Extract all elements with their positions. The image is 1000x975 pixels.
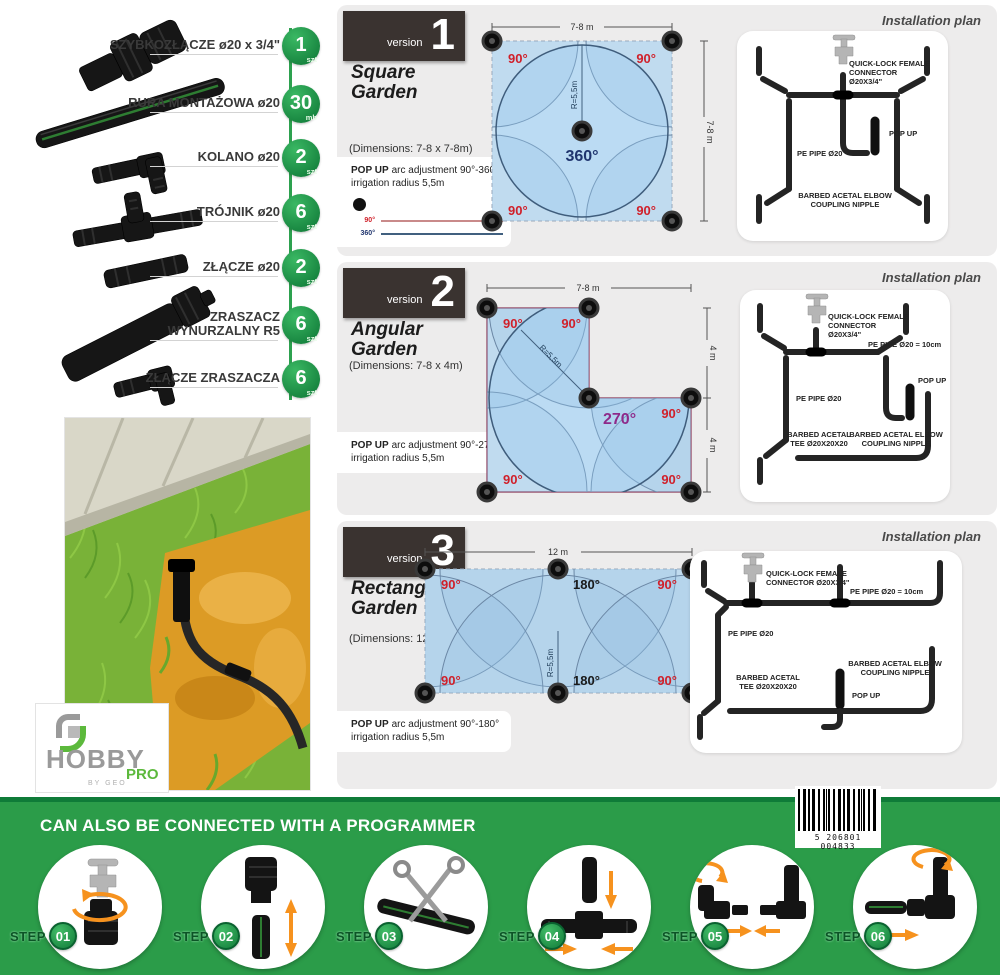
part-label: TRÓJNIK ø20	[197, 205, 280, 219]
svg-text:90°: 90°	[636, 203, 656, 218]
leader-line	[150, 221, 278, 222]
plan-label-elbow: BARBED ACETAL ELBOW COUPLING NIPPLE	[785, 191, 905, 209]
tap-icon	[806, 294, 828, 323]
leader-line	[150, 276, 278, 277]
logo-byline: BY GEO	[88, 780, 127, 787]
step-1-photo	[38, 845, 162, 969]
part-label: ZRASZACZ WYNURZALNY R5	[150, 310, 280, 337]
leader-line	[150, 340, 278, 341]
step-4-photo	[527, 845, 651, 969]
svg-text:90°: 90°	[441, 577, 461, 592]
svg-text:4 m: 4 m	[708, 345, 717, 360]
step-1-tap-coupling-icon	[38, 845, 162, 969]
svg-text:12 m: 12 m	[548, 547, 568, 557]
version-1-badge: version 1	[343, 11, 465, 61]
step-2-badge: STEP 02	[173, 922, 240, 950]
part-label: ZŁĄCZE ø20	[203, 260, 280, 274]
plan-label-pe-pipe: PE PIPE Ø20	[796, 394, 841, 403]
version-2-badge: version 2	[343, 268, 465, 318]
step-4-badge: STEP 04	[499, 922, 566, 950]
installation-plan-title: Installation plan	[882, 270, 981, 285]
quantity-badge: 2szt	[282, 139, 320, 177]
svg-text:180°: 180°	[573, 577, 600, 592]
svg-text:R=5,5m: R=5,5m	[546, 649, 555, 678]
installation-plan-title: Installation plan	[882, 529, 981, 544]
step-5-photo	[690, 845, 814, 969]
part-label: ZŁĄCZE ZRASZACZA	[146, 371, 280, 385]
step-2-photo	[201, 845, 325, 969]
part-label: KOLANO ø20	[198, 150, 280, 164]
svg-text:360°: 360°	[565, 148, 598, 165]
installation-plan-box: QUICK-LOCK FEMALE CONNECTOR Ø20X3/4" PE …	[690, 551, 962, 753]
step-1-badge: STEP 01	[10, 922, 77, 950]
rectangular-garden-diagram: 12 m 6 m R=5,5m 90° 180° 90° 90°	[407, 543, 713, 723]
leaflet-page: SZYBKOZŁĄCZE ø20 x 3/4" 1szt RURA MONTAŻ…	[0, 0, 1000, 975]
banner-title: CAN ALSO BE CONNECTED WITH A PROGRAMMER	[40, 816, 476, 836]
plan-label-pop-up: POP UP	[852, 691, 880, 700]
step-3-scissors-icon	[364, 845, 488, 969]
step-6-photo	[853, 845, 977, 969]
plan-label-elbow: BARBED ACETAL ELBOW COUPLING NIPPLE	[840, 659, 950, 677]
step-3-badge: STEP 03	[336, 922, 403, 950]
barcode-bars	[798, 789, 878, 831]
svg-text:4 m: 4 m	[708, 437, 717, 452]
square-garden-diagram: 7-8 m 7-8 m R=5,5m 90° 90° 90° 90°	[460, 17, 716, 245]
plan-label-quick-lock: QUICK-LOCK FEMALE CONNECTOR Ø20X3/4"	[828, 312, 910, 339]
svg-text:90°: 90°	[661, 472, 681, 487]
svg-text:7-8 m: 7-8 m	[576, 283, 599, 293]
svg-text:90°: 90°	[441, 673, 461, 688]
quantity-badge: 6szt	[282, 194, 320, 232]
step-6-elbow-icon	[853, 845, 977, 969]
plan-label-pop-up: POP UP	[889, 129, 917, 138]
plan-label-quick-lock: QUICK-LOCK FEMALE CONNECTOR Ø20X3/4"	[849, 59, 931, 86]
dimensions-note: (Dimensions: 7-8 x 7-8m)	[349, 143, 472, 155]
quantity-badge: 6szt	[282, 360, 320, 398]
svg-text:90°: 90°	[508, 51, 528, 66]
svg-text:90°: 90°	[636, 51, 656, 66]
barcode: 5 206801 004833	[795, 786, 881, 848]
svg-text:7-8 m: 7-8 m	[570, 22, 593, 32]
quantity-badge: 1szt	[282, 27, 320, 65]
garden-name: Angular Garden	[351, 320, 423, 360]
version-1-panel: Installation plan version 1 Square Garde…	[337, 5, 997, 256]
plan-label-pe-pipe-10: PE PIPE Ø20 = 10cm	[868, 340, 948, 349]
plan-label-pe-pipe: PE PIPE Ø20	[797, 149, 842, 158]
step-3-photo	[364, 845, 488, 969]
svg-text:90°: 90°	[657, 577, 677, 592]
quantity-badge: 6szt	[282, 306, 320, 344]
svg-text:90°: 90°	[561, 316, 581, 331]
leader-line	[150, 112, 278, 113]
tap-icon	[742, 553, 764, 582]
barcode-digits: 5 206801 004833	[798, 833, 878, 851]
svg-text:90°: 90°	[508, 203, 528, 218]
plan-label-quick-lock: QUICK-LOCK FEMALE CONNECTOR Ø20X3/4"	[766, 569, 852, 587]
part-label: SZYBKOZŁĄCZE ø20 x 3/4"	[110, 38, 280, 52]
step-6-badge: STEP 06	[825, 922, 892, 950]
dimensions-note: (Dimensions: 7-8 x 4m)	[349, 360, 463, 372]
svg-text:7-8 m: 7-8 m	[705, 120, 715, 143]
quantity-badge: 2szt	[282, 249, 320, 287]
installation-plan-title: Installation plan	[882, 13, 981, 28]
svg-text:180°: 180°	[573, 673, 600, 688]
plan-label-pe-pipe-10: PE PIPE Ø20 = 10cm	[850, 587, 940, 596]
svg-text:R=5,5m: R=5,5m	[570, 81, 579, 110]
svg-text:90°: 90°	[661, 406, 681, 421]
plan-label-pop-up: POP UP	[918, 376, 946, 385]
leader-line	[150, 166, 278, 167]
leader-line	[150, 54, 278, 55]
sprinkler-dot-icon	[353, 198, 366, 211]
angular-garden-diagram: 7-8 m 4 m 4 m R=5,5m 90° 9	[455, 278, 717, 508]
svg-text:90°: 90°	[503, 316, 523, 331]
version-2-panel: Installation plan version 2 Angular Gard…	[337, 262, 997, 515]
quantity-badge: 30mb	[282, 85, 320, 123]
installation-plan-box: QUICK-LOCK FEMALE CONNECTOR Ø20X3/4" PE …	[740, 290, 950, 502]
version-3-panel: Installation plan version 3 Rectangular …	[337, 521, 997, 789]
installation-plan-box: QUICK-LOCK FEMALE CONNECTOR Ø20X3/4" POP…	[737, 31, 948, 241]
plan-label-pe-pipe: PE PIPE Ø20	[728, 629, 773, 638]
hobby-pro-logo: HOBBY PRO BY GEO	[35, 703, 169, 793]
svg-text:90°: 90°	[657, 673, 677, 688]
step-4-tee-icon	[527, 845, 651, 969]
logo-sub-text: PRO	[126, 766, 159, 783]
garden-name: Square Garden	[351, 63, 418, 103]
step-5-badge: STEP 05	[662, 922, 729, 950]
step-2-coupling-pipe-icon	[201, 845, 325, 969]
plan-label-tee: BARBED ACETAL TEE Ø20X20X20	[728, 673, 808, 691]
svg-text:90°: 90°	[503, 472, 523, 487]
part-label: RURA MONTAŻOWA ø20	[128, 96, 280, 110]
step-5-elbow-tee-icon	[690, 845, 814, 969]
svg-text:270°: 270°	[603, 411, 636, 428]
leader-line	[150, 387, 278, 388]
plan-label-elbow: BARBED ACETAL ELBOW COUPLING NIPPLE	[844, 430, 948, 448]
